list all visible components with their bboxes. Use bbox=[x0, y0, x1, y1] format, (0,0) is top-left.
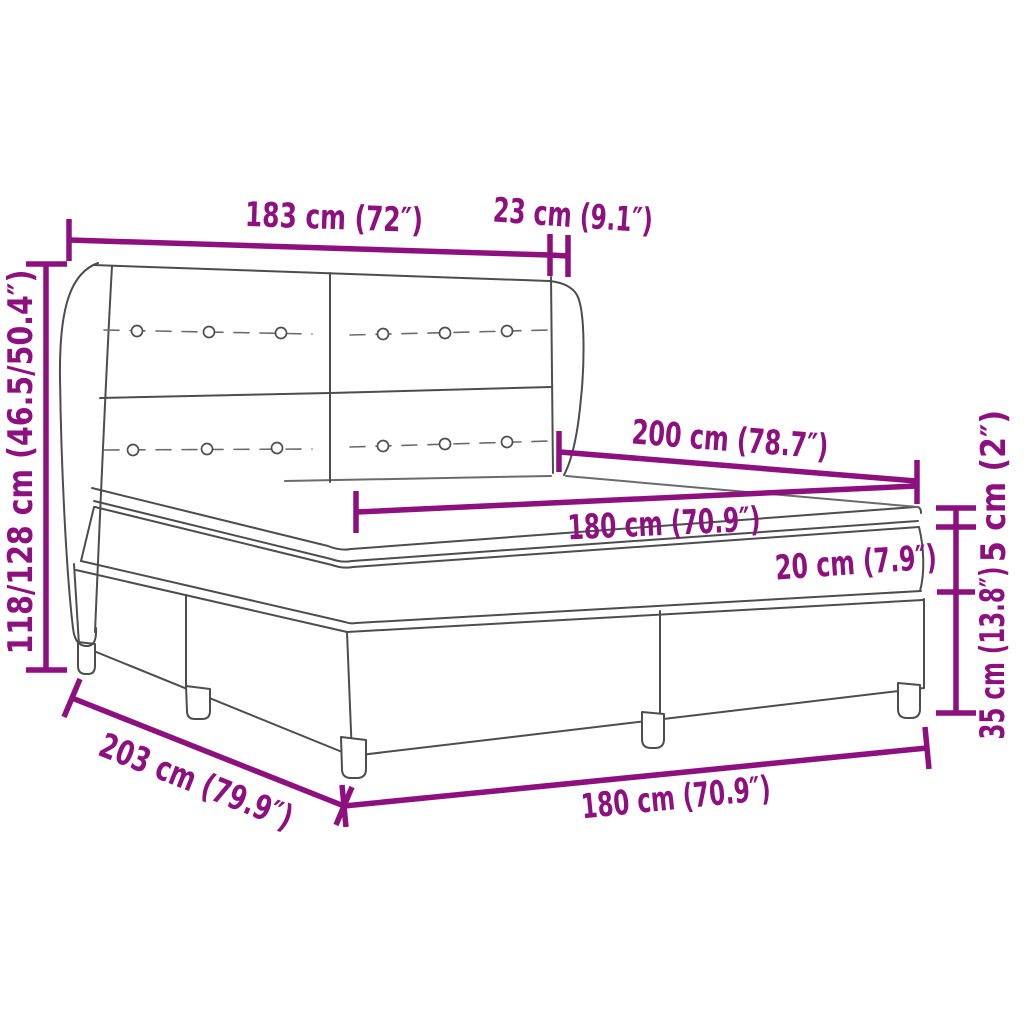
button bbox=[440, 439, 451, 450]
label-mattress-thickness: 20 cm (7.9″) bbox=[774, 537, 938, 588]
label-headboard-depth: 23 cm (9.1″) bbox=[492, 190, 654, 241]
label-headboard-height: 118/128 cm (46.5/50.4″) bbox=[1, 270, 41, 655]
bed-legs bbox=[78, 642, 920, 778]
headboard-horizontal-seam bbox=[100, 387, 551, 398]
mattress-left-edge bbox=[81, 507, 94, 561]
bed-illustration bbox=[60, 263, 924, 778]
headboard-right-wing-seam bbox=[551, 277, 553, 473]
button bbox=[378, 329, 389, 340]
headboard-top-edge bbox=[93, 265, 549, 281]
bed-leg bbox=[341, 737, 366, 778]
button bbox=[276, 328, 287, 339]
dimension-lines bbox=[26, 219, 976, 827]
bed-leg bbox=[642, 712, 664, 748]
dim-cap bbox=[925, 727, 929, 769]
bed-base bbox=[74, 564, 924, 756]
button bbox=[502, 437, 513, 448]
dim-cap bbox=[342, 785, 346, 827]
label-topper-thickness: 5 cm (2″) bbox=[974, 410, 1014, 562]
bed-leg bbox=[186, 686, 210, 719]
button bbox=[204, 327, 215, 338]
button bbox=[378, 441, 389, 452]
button bbox=[272, 443, 283, 454]
label-bed-length: 203 cm (79.9″) bbox=[93, 726, 298, 839]
button bbox=[132, 326, 143, 337]
button bbox=[128, 445, 139, 456]
button bbox=[502, 326, 513, 337]
headboard-right-wing bbox=[549, 281, 584, 475]
button bbox=[202, 444, 213, 455]
dim-line-headboard-width bbox=[69, 240, 550, 255]
headboard-bottom-junction bbox=[285, 476, 551, 481]
button bbox=[440, 328, 451, 339]
tufting-lines bbox=[104, 330, 550, 450]
label-base-height: 35 cm (13.8″) bbox=[973, 567, 1013, 740]
dimension-diagram: 183 cm (72″) 23 cm (9.1″) 118/128 cm (46… bbox=[0, 0, 1024, 1024]
base-bottom-foot-edge bbox=[352, 688, 924, 756]
bed-leg bbox=[898, 683, 920, 718]
headboard bbox=[60, 263, 584, 646]
label-headboard-width: 183 cm (72″) bbox=[244, 195, 423, 241]
bed-dimension-svg: 183 cm (72″) 23 cm (9.1″) 118/128 cm (46… bbox=[0, 0, 1024, 1024]
headboard-left-wing bbox=[60, 263, 98, 646]
